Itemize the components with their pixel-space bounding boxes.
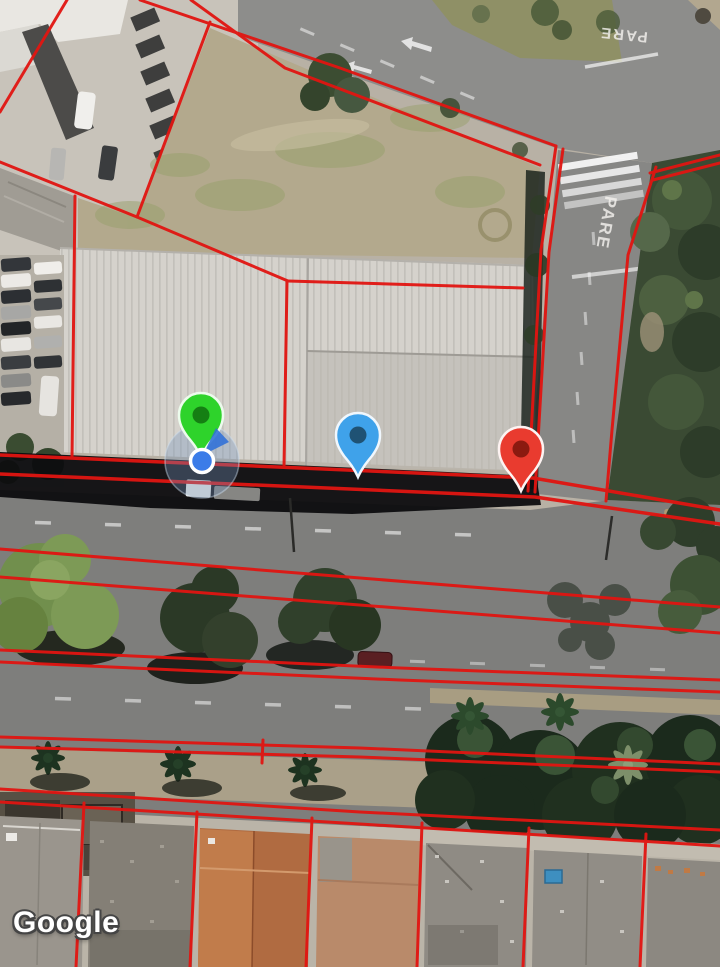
google-watermark: Google (13, 906, 119, 940)
parking-strip (0, 255, 64, 487)
user-location-dot (191, 450, 214, 473)
water-tank (545, 870, 562, 883)
map-viewport[interactable]: PARE PARE (0, 0, 720, 967)
